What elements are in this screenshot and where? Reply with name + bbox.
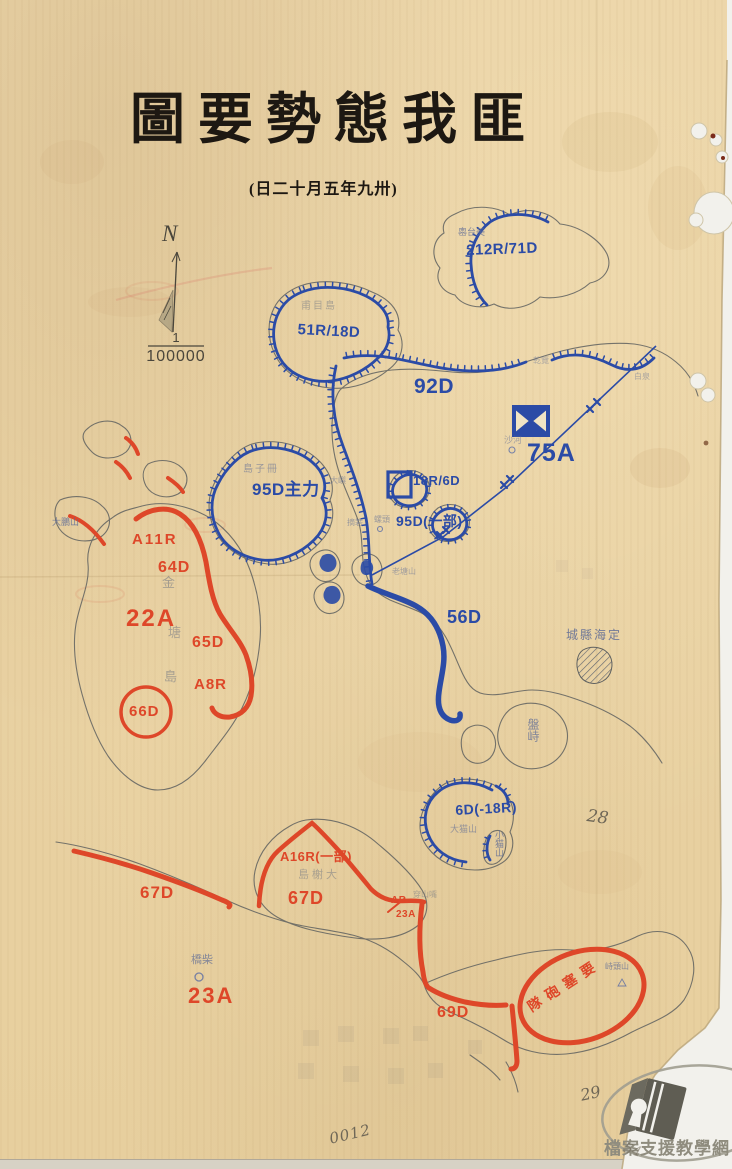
watermark-book-logo <box>619 1075 686 1148</box>
watermark-graphics <box>0 0 732 1169</box>
scanned-military-map: 圖要勢態我匪 (日二十月五年九卅) N 1 100000 212R/71D 51… <box>0 0 732 1169</box>
